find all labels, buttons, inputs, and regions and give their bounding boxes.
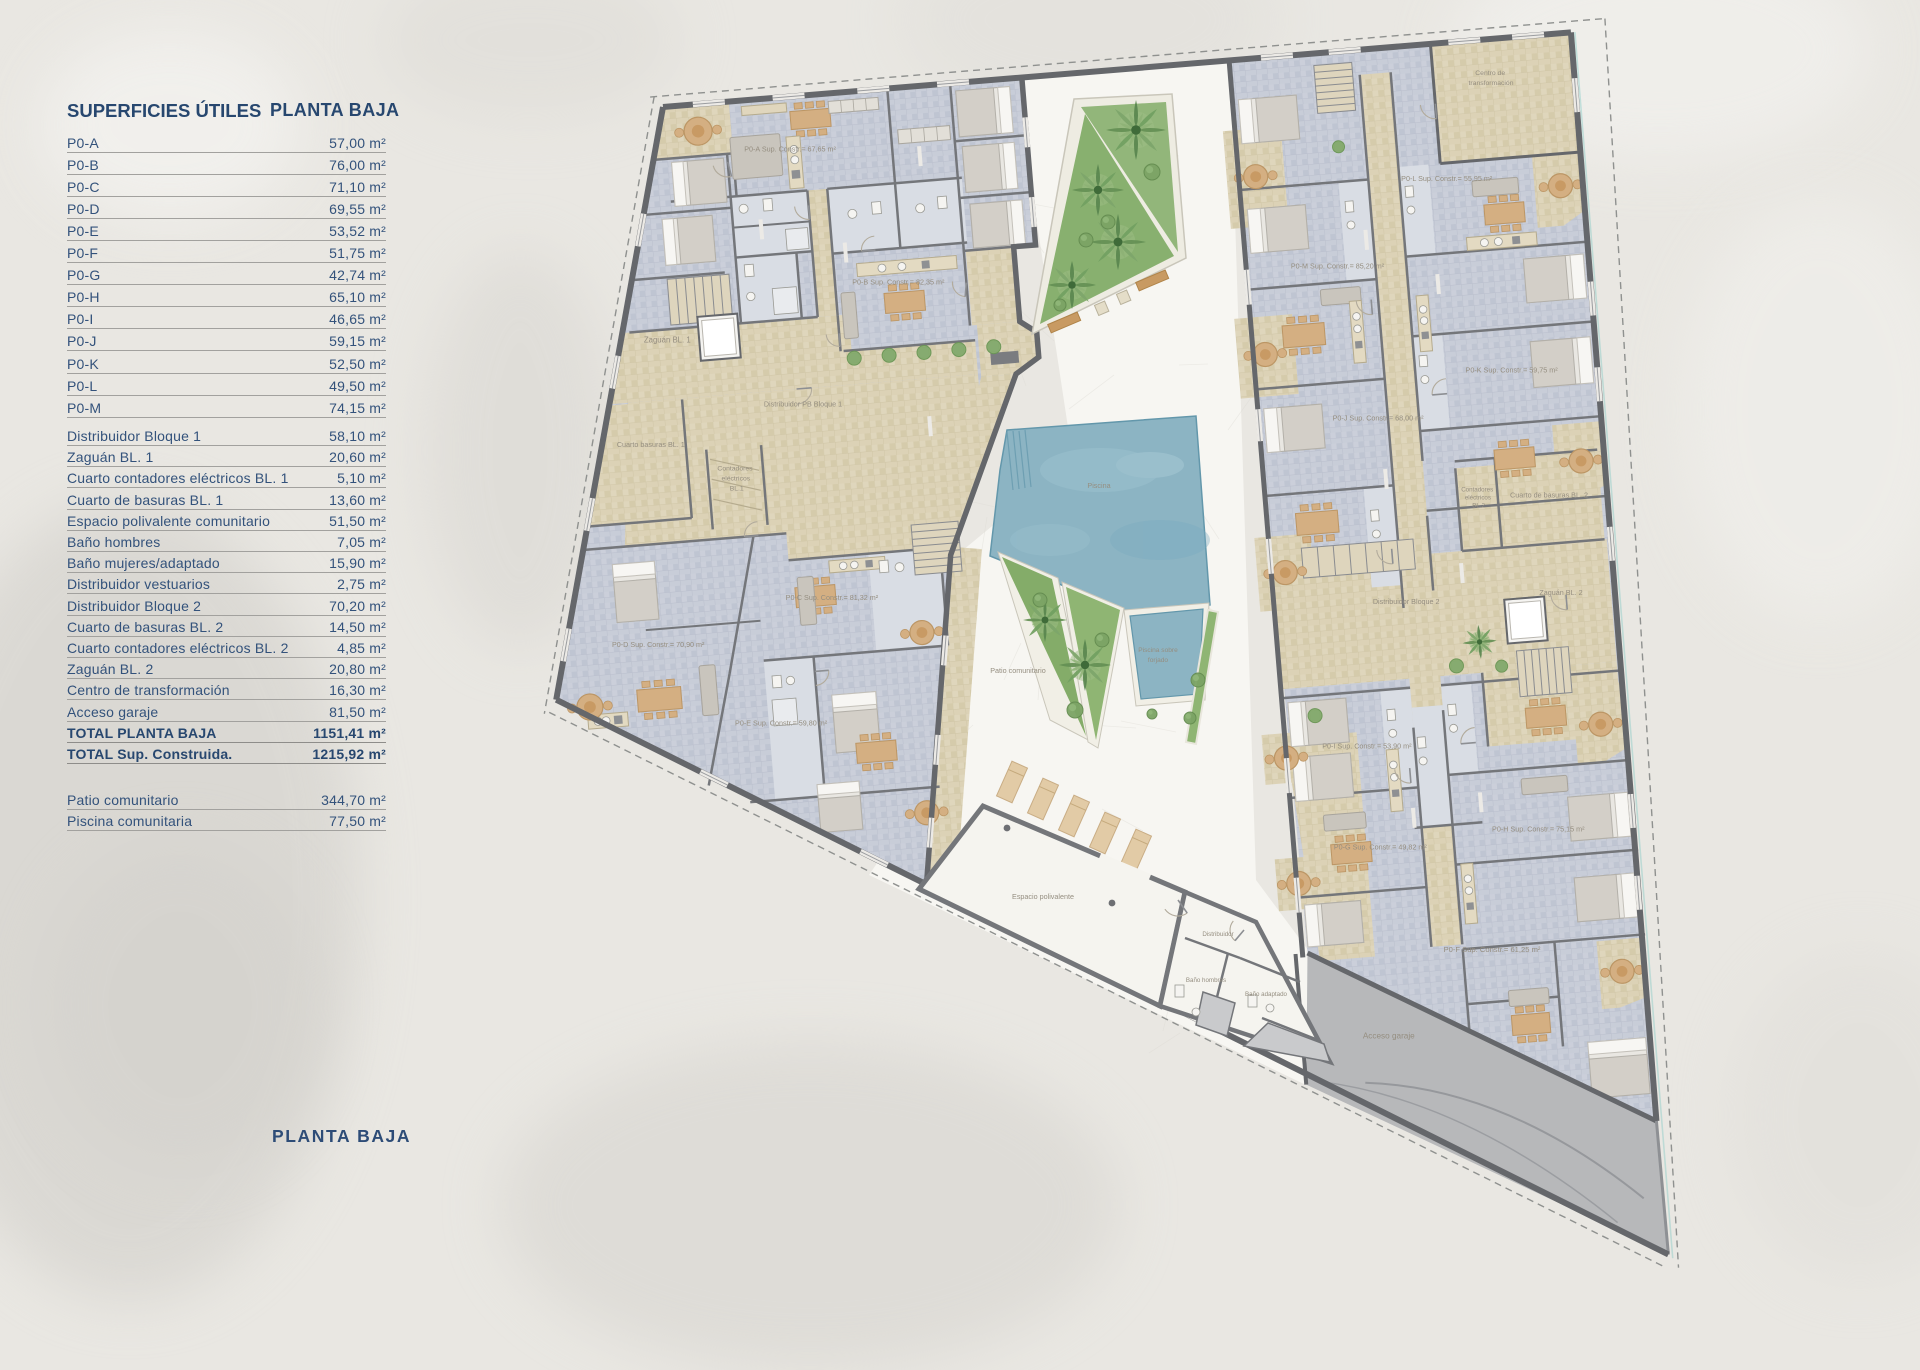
svg-text:Cuarto basuras BL. 1: Cuarto basuras BL. 1	[617, 440, 685, 449]
svg-text:P0-J Sup. Constr.= 68,00 m²: P0-J Sup. Constr.= 68,00 m²	[1333, 414, 1424, 423]
svg-text:P0-M Sup. Constr.= 85,20 m²: P0-M Sup. Constr.= 85,20 m²	[1291, 261, 1385, 270]
svg-text:Zaguán BL. 2: Zaguán BL. 2	[1539, 588, 1582, 597]
svg-text:P0-A Sup. Constr.= 67,65 m²: P0-A Sup. Constr.= 67,65 m²	[744, 145, 836, 154]
svg-text:forjado: forjado	[1148, 657, 1168, 664]
svg-text:BL.1: BL.1	[730, 485, 744, 492]
svg-text:Piscina: Piscina	[1087, 481, 1110, 490]
svg-text:eléctricos: eléctricos	[1465, 495, 1491, 502]
svg-text:Centro de: Centro de	[1475, 70, 1505, 77]
svg-text:P0-B Sup. Constr.= 82,35 m²: P0-B Sup. Constr.= 82,35 m²	[852, 277, 945, 286]
svg-text:Acceso garaje: Acceso garaje	[1363, 1032, 1415, 1041]
svg-text:Contadores: Contadores	[1461, 487, 1493, 494]
svg-text:P0-K Sup. Constr.= 59,75 m²: P0-K Sup. Constr.= 59,75 m²	[1466, 365, 1559, 374]
svg-text:eléctricos: eléctricos	[721, 475, 750, 482]
svg-text:P0-G Sup. Constr.= 49,82 m²: P0-G Sup. Constr.= 49,82 m²	[1334, 843, 1427, 852]
svg-text:P0-F Sup. Constr.= 61,25 m²: P0-F Sup. Constr.= 61,25 m²	[1444, 945, 1541, 954]
svg-text:Piscina sobre: Piscina sobre	[1138, 647, 1178, 654]
svg-text:Distribuidor Bloque 2: Distribuidor Bloque 2	[1373, 597, 1440, 606]
svg-text:Patio comunitario: Patio comunitario	[990, 666, 1046, 675]
svg-text:Zaguán BL. 1: Zaguán BL. 1	[644, 335, 691, 344]
svg-text:Baño hombres: Baño hombres	[1186, 977, 1226, 984]
svg-text:P0-C Sup. Constr.= 81,32 m²: P0-C Sup. Constr.= 81,32 m²	[786, 593, 879, 602]
svg-text:P0-H Sup. Constr.= 75,15 m²: P0-H Sup. Constr.= 75,15 m²	[1492, 825, 1585, 834]
svg-text:Cuarto de basuras BL. 2: Cuarto de basuras BL. 2	[1510, 491, 1588, 500]
svg-text:P0-D Sup. Constr.= 70,90 m²: P0-D Sup. Constr.= 70,90 m²	[612, 640, 705, 649]
svg-text:P0-L Sup. Constr.= 55,95 m²: P0-L Sup. Constr.= 55,95 m²	[1401, 174, 1493, 183]
svg-text:transformación: transformación	[1469, 80, 1514, 87]
svg-text:Distribuidor PB Bloque 1: Distribuidor PB Bloque 1	[764, 400, 842, 409]
svg-text:P0-I Sup. Constr.= 53,90 m²: P0-I Sup. Constr.= 53,90 m²	[1322, 742, 1412, 751]
svg-text:P0-E Sup. Constr.= 59,80 m²: P0-E Sup. Constr.= 59,80 m²	[735, 718, 828, 727]
svg-text:Distribuidor: Distribuidor	[1202, 931, 1233, 938]
svg-text:BL.2: BL.2	[1472, 503, 1485, 510]
svg-text:Contadores: Contadores	[717, 465, 753, 472]
svg-text:Espacio polivalente: Espacio polivalente	[1012, 892, 1074, 901]
svg-text:Baño adaptado: Baño adaptado	[1245, 991, 1288, 998]
